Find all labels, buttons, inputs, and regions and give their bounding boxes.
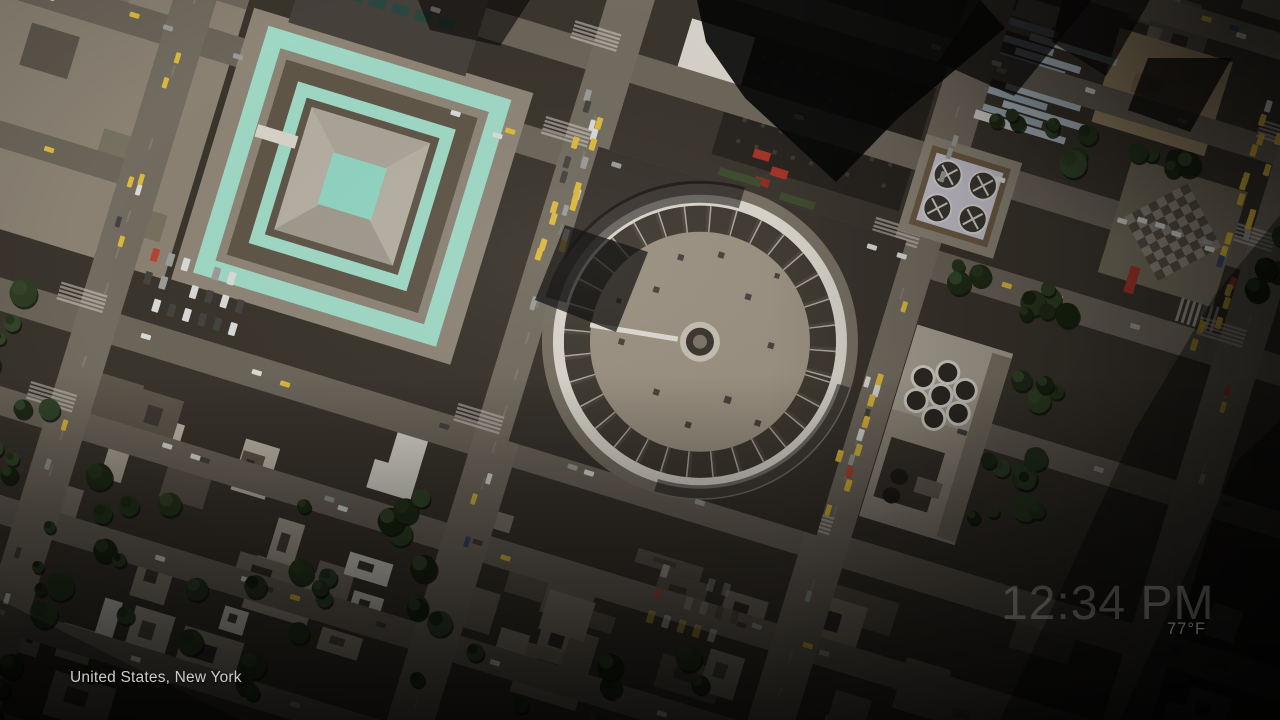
temperature-label: 77°F	[1167, 620, 1206, 639]
ambient-screen: United States, New York 12:34 PM 77°F	[0, 0, 1280, 720]
location-label: United States, New York	[70, 669, 242, 687]
